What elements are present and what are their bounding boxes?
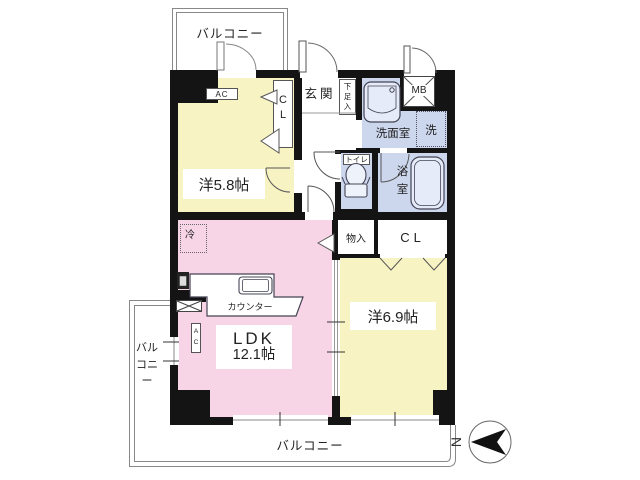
window-ldk-bottom bbox=[233, 415, 328, 425]
balcony-left-label: バルコニー bbox=[136, 340, 158, 390]
window-ldk-left bbox=[169, 337, 179, 365]
entrance-label: 玄関 bbox=[300, 84, 340, 100]
counter-label: カウンター bbox=[218, 300, 282, 313]
washer-label: 洗 bbox=[416, 118, 446, 142]
ac-room1-label: AC bbox=[206, 88, 238, 100]
opening-entrance-door bbox=[300, 70, 338, 78]
balcony-bottom-label: バルコニー bbox=[252, 434, 368, 454]
opening-closet2-doors bbox=[380, 254, 445, 258]
compass-arrow bbox=[471, 429, 506, 455]
balcony-top-label: バルコニー bbox=[178, 22, 282, 42]
closet1-label: CL bbox=[276, 93, 290, 124]
floor-plan: N バルコニー バルコニー バルコニー 洋5.8帖 洋6.9帖 LDK 12.1… bbox=[0, 0, 640, 480]
mb-door-leaf bbox=[404, 46, 410, 73]
bath-label: 浴室 bbox=[395, 163, 410, 200]
opening-ldk-door bbox=[305, 212, 333, 220]
balcony-door-leaf bbox=[217, 42, 224, 70]
sliding-door-ldk-room2 bbox=[332, 260, 340, 396]
wall-patch-bottom-left bbox=[170, 390, 210, 425]
kitchen-vent bbox=[177, 272, 189, 289]
fridge-label: 冷 bbox=[182, 226, 198, 240]
ldk-label: LDK 12.1帖 bbox=[216, 325, 292, 369]
toilet-label: トイレ bbox=[343, 154, 370, 165]
room1-label: 洋5.8帖 bbox=[183, 169, 265, 199]
compass-circle bbox=[469, 421, 511, 463]
bathroom-area bbox=[378, 153, 447, 212]
opening-toilet-door bbox=[335, 154, 341, 182]
storage-label: 物入 bbox=[338, 220, 374, 254]
ldk-label-line1: LDK bbox=[233, 330, 275, 349]
balcony-door-arc bbox=[226, 44, 256, 70]
room-western69 bbox=[340, 258, 447, 417]
opening-bath-door bbox=[380, 148, 407, 153]
pipe-space-box bbox=[176, 300, 202, 312]
opening-washroom-door bbox=[356, 120, 362, 148]
washroom-label: 洗面室 bbox=[364, 125, 422, 141]
compass-north-label: N bbox=[448, 437, 464, 447]
ac-ldk-label: AC bbox=[192, 326, 200, 348]
opening-balcony-door bbox=[218, 70, 256, 78]
opening-room1-door bbox=[294, 160, 302, 193]
closet2-label: CL bbox=[378, 222, 447, 252]
ldk-label-line2: 12.1帖 bbox=[233, 348, 276, 364]
shoe-box-label: 下足入 bbox=[343, 82, 352, 112]
meter-box-text: MB bbox=[411, 85, 428, 96]
meter-box-label: MB bbox=[403, 82, 435, 98]
room2-label: 洋6.9帖 bbox=[350, 302, 436, 330]
entrance-door-leaf bbox=[299, 41, 306, 72]
window-room2-bottom bbox=[351, 415, 439, 425]
entrance-door-arc bbox=[308, 43, 337, 72]
